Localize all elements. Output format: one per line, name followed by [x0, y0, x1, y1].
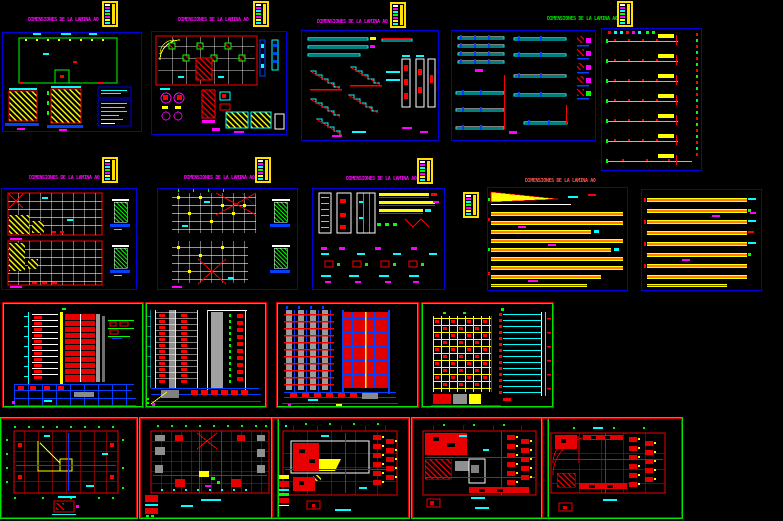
cad-linework — [2, 189, 136, 289]
sheet-format-icon — [255, 157, 271, 183]
cad-linework — [158, 189, 297, 289]
sheet-label-4: DIMENSIONES DE LA LAMINA A0 — [547, 16, 617, 22]
floorplan-sheet-4[interactable] — [412, 418, 548, 518]
sheet-format-icon — [102, 157, 118, 183]
elevation-sheet-4[interactable] — [422, 303, 553, 407]
sheet-format-icon — [253, 1, 269, 27]
floorplan-sheet-5[interactable] — [542, 418, 682, 518]
cad-linework — [488, 188, 627, 290]
sheet-label-3: DIMENSIONES DE LA LAMINA A0 — [317, 19, 387, 25]
sheet-beam-elevations-tall[interactable] — [601, 28, 702, 171]
sheet-framing-plan-2[interactable] — [157, 188, 298, 290]
sheet-beam-elevations-2[interactable] — [641, 189, 762, 291]
floorplan-sheet-2[interactable] — [140, 418, 278, 518]
sheet-stair-sections[interactable] — [301, 30, 439, 141]
sheet-label-5: DIMENSIONES DE LA LAMINA A0 — [29, 175, 99, 181]
sheet-wall-sections-details[interactable] — [312, 188, 445, 290]
elevation-sheet-1[interactable] — [3, 303, 143, 407]
cad-linework — [452, 31, 595, 140]
cad-linework — [152, 32, 286, 134]
cad-canvas[interactable]: DIMENSIONES DE LA LAMINA A0 DIMENSIONES … — [0, 0, 783, 521]
sheet-format-icon — [463, 192, 479, 218]
sheet-roof-plan-details[interactable] — [2, 32, 142, 132]
cad-linework — [602, 29, 701, 170]
sheet-format-icon — [417, 158, 433, 184]
sheet-label-6: DIMENSIONES DE LA LAMINA A0 — [184, 175, 254, 181]
sheet-label-7: DIMENSIONES DE LA LAMINA A0 — [346, 176, 416, 182]
sheet-beam-schedule-1[interactable] — [451, 30, 596, 141]
cad-linework — [2, 419, 136, 517]
sheet-format-icon — [617, 1, 633, 27]
sheet-beam-elevations-1[interactable] — [487, 187, 628, 291]
cad-linework — [413, 419, 547, 517]
sheet-label-8: DIMENSIONES DE LA LAMINA A0 — [525, 178, 595, 184]
cad-linework — [147, 304, 265, 406]
cad-linework — [543, 419, 681, 517]
cad-linework — [423, 304, 552, 406]
cad-linework — [3, 33, 141, 131]
cad-linework — [278, 304, 417, 406]
sheet-format-icon — [102, 1, 118, 27]
cad-linework — [4, 304, 142, 406]
sheet-format-icon — [390, 2, 406, 28]
sheet-label-1: DIMENSIONES DE LA LAMINA A0 — [28, 17, 98, 23]
cad-linework — [141, 419, 277, 517]
cad-linework — [313, 189, 444, 289]
sheet-label-2: DIMENSIONES DE LA LAMINA A0 — [178, 17, 248, 23]
sheet-framing-plan-1[interactable] — [1, 188, 137, 290]
elevation-sheet-2[interactable] — [146, 303, 266, 407]
cad-linework — [302, 31, 438, 140]
floorplan-sheet-1[interactable] — [1, 418, 137, 518]
cad-linework — [642, 190, 761, 290]
floorplan-sheet-3[interactable] — [272, 418, 409, 518]
cad-linework — [273, 419, 408, 517]
sheet-foundation-plan-details[interactable] — [151, 31, 287, 135]
elevation-sheet-3[interactable] — [277, 303, 418, 407]
